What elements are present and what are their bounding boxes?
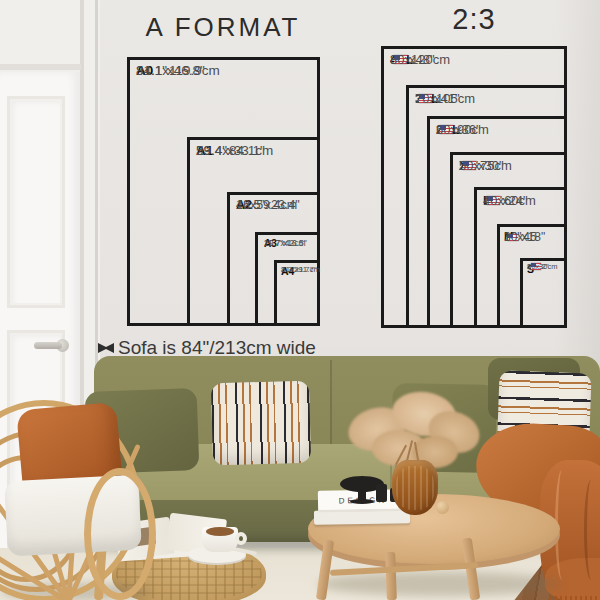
blanket-fringe [550, 596, 600, 600]
table-shadow [318, 572, 562, 596]
cup-handle [235, 532, 247, 545]
black-candle-holder [376, 484, 387, 502]
size-label-a3: A311.7"x16.5"29.7x42cm [258, 235, 266, 238]
size-label-xl: XL20"x30"50x75cm [453, 155, 461, 158]
size-label-4xl: 4XL32"x48"80x120cm [384, 49, 392, 52]
black-bowl-foot [350, 499, 374, 504]
table-leg [385, 552, 397, 600]
sofa-width-text: Sofa is 84"/213cm wide [106, 337, 328, 359]
coffee-surface [206, 527, 234, 536]
size-label-2xl: 2XL24"x36"60x90cm [430, 119, 438, 122]
blanket-fold [584, 480, 598, 580]
sofa-width-annotation: Sofa is 84"/213cm wide [106, 337, 598, 359]
size-label-3xl: 3XL27"x41"70x105cm [409, 88, 417, 91]
poster-size-guide-image: A FORMAT 2:3 A031.1"x46.8"84.1x119.9cm A… [0, 0, 600, 600]
a-format-title: A FORMAT [103, 12, 343, 43]
rattan-armrest [84, 468, 156, 600]
size-label-a0: A031.1"x46.8"84.1x119.9cm [130, 60, 138, 63]
ratio-2-3-title: 2:3 [414, 3, 534, 36]
door-handle [34, 342, 62, 349]
size-label-l: L16"x24"40x60cm [477, 190, 485, 193]
size-label-a2: A216.5"x23.4"42x59.4cm [230, 195, 238, 198]
size-label-m: M12"x18"30x45 [500, 227, 506, 230]
vase-ribs [396, 466, 434, 510]
size-label-s: S8"x12"20x30cm [523, 261, 528, 263]
striped-pillow-left [211, 381, 311, 466]
size-label-a1: A123.4"x33.1"59.4x84.1cm [190, 140, 198, 143]
door-transom-molding [0, 64, 81, 70]
size-box-s: S8"x12"20x30cm [520, 258, 567, 328]
size-label-a4: A48.3"x11.7"21x29.7cm [277, 263, 282, 265]
door-panel-upper [7, 96, 65, 308]
wood-bead [436, 501, 449, 514]
size-box-a4: A48.3"x11.7"21x29.7cm [274, 260, 320, 326]
